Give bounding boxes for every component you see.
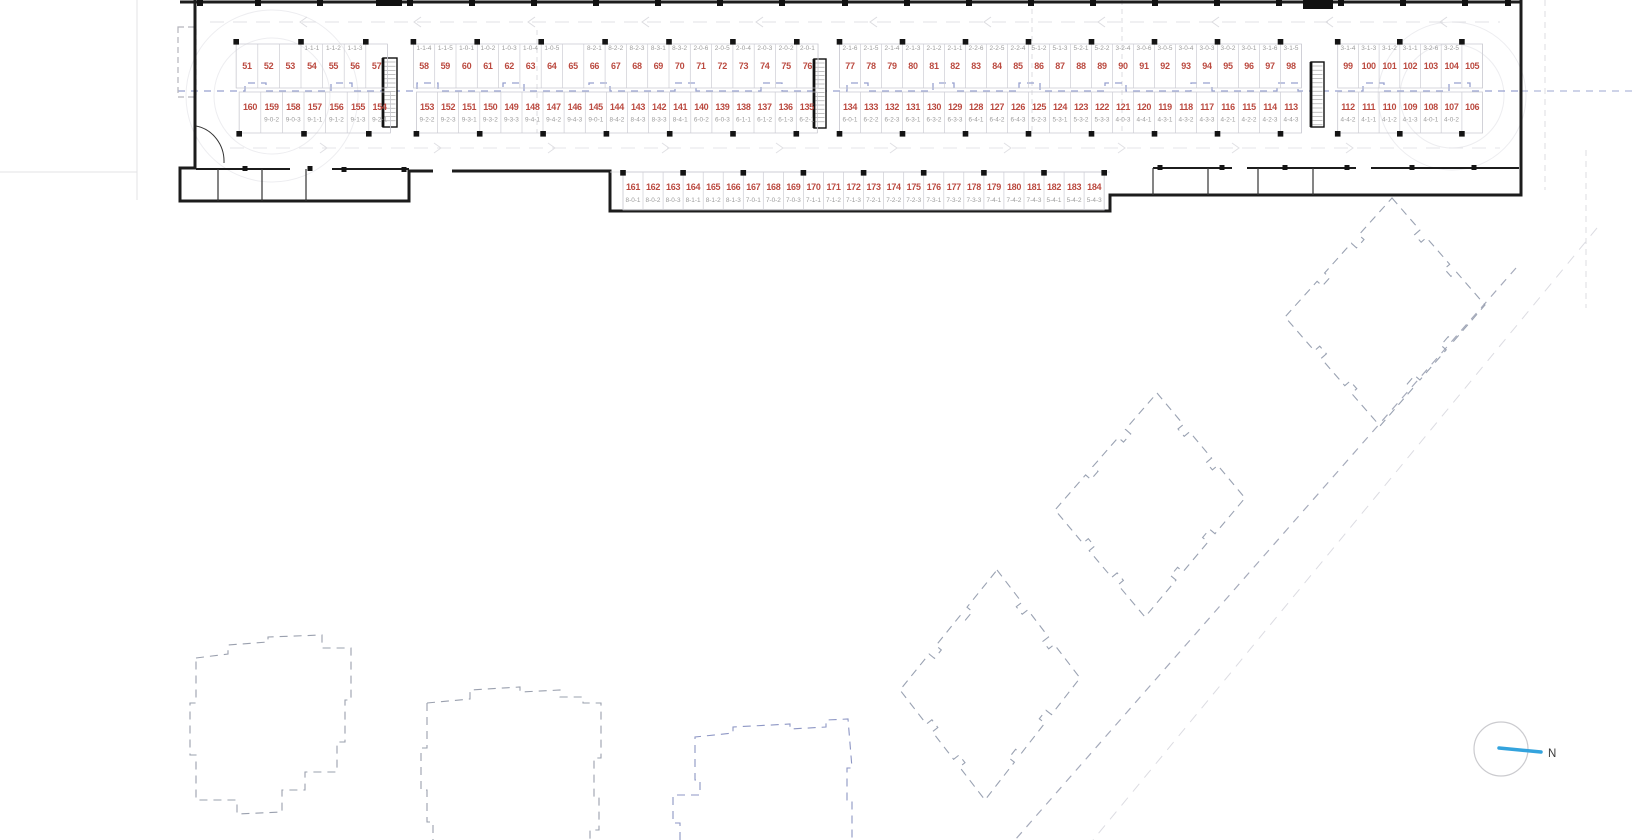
unit-code: 5-1-3 — [1053, 45, 1068, 52]
unit-code: 4-4-1 — [1137, 117, 1152, 124]
stall-number: 164 — [686, 182, 700, 192]
unit-code: 8-3-3 — [652, 117, 667, 124]
unit-code: 4-3-2 — [1179, 117, 1194, 124]
stall-number: 163 — [666, 182, 680, 192]
unit-code: 2-0-6 — [693, 45, 708, 52]
stall-number: 81 — [929, 61, 939, 71]
structural-column — [1220, 165, 1225, 170]
stall-number: 58 — [419, 61, 429, 71]
unit-code: 7-4-3 — [1027, 197, 1042, 204]
stall-number: 63 — [526, 61, 536, 71]
stall-number: 151 — [462, 102, 476, 112]
storage-partitions-right — [1153, 168, 1313, 195]
stall-number: 180 — [1007, 182, 1021, 192]
structural-column — [1090, 0, 1096, 6]
unit-code: 2-1-4 — [885, 45, 900, 52]
stall-number: 98 — [1286, 61, 1296, 71]
unit-code: 8-0-1 — [626, 197, 641, 204]
parking-group: 1618-0-11628-0-21638-0-31648-1-11658-1-2… — [620, 170, 1107, 210]
stall-number: 115 — [1242, 102, 1256, 112]
structural-column — [414, 131, 420, 137]
structural-column — [837, 39, 843, 45]
structural-column — [837, 131, 843, 137]
structural-column — [1472, 165, 1477, 170]
stall-number: 134 — [843, 102, 857, 112]
structural-column — [298, 39, 304, 45]
unit-code: 1-0-5 — [544, 45, 559, 52]
north-label: N — [1548, 748, 1556, 760]
structural-column — [342, 167, 347, 172]
stall-number: 159 — [265, 102, 279, 112]
unit-code: 9-3-3 — [504, 117, 519, 124]
structural-column — [1345, 165, 1350, 170]
stall-number: 153 — [420, 102, 434, 112]
unit-code: 9-4-1 — [525, 117, 540, 124]
structural-column — [667, 131, 673, 137]
building-outline-southwest-2 — [421, 687, 601, 840]
unit-code: 8-4-2 — [609, 117, 624, 124]
structural-column — [1152, 131, 1158, 137]
unit-code: 2-0-4 — [736, 45, 751, 52]
unit-code: 7-4-2 — [1007, 197, 1022, 204]
stall-number: 158 — [286, 102, 300, 112]
structural-column — [963, 39, 969, 45]
building-outline-tower-3 — [900, 570, 1080, 800]
structural-column — [842, 0, 848, 6]
unit-code: 3-1-3 — [1361, 45, 1376, 52]
structural-column — [1215, 39, 1221, 45]
stall-number: 64 — [547, 61, 557, 71]
stall-number: 152 — [441, 102, 455, 112]
stall-number: 176 — [927, 182, 941, 192]
unit-code: 9-1-2 — [329, 117, 344, 124]
unit-code: 1-0-3 — [502, 45, 517, 52]
stall-number: 51 — [242, 61, 252, 71]
unit-code: 9-0-1 — [588, 117, 603, 124]
floor-plan-canvas: 515253541-1-1551-1-2561-1-357 581-1-4591… — [0, 0, 1638, 840]
parking-group: 993-1-41003-1-31013-1-21023-1-11033-2-61… — [1335, 39, 1483, 88]
unit-code: 8-4-3 — [631, 117, 646, 124]
stall-number: 174 — [887, 182, 901, 192]
ramp-arc — [214, 38, 330, 154]
structural-column — [1276, 0, 1282, 6]
unit-code: 9-0-2 — [264, 117, 279, 124]
lane-arrow-left — [984, 17, 991, 27]
unit-code: 2-0-1 — [800, 45, 815, 52]
stall-number: 114 — [1263, 102, 1277, 112]
stall-number: 157 — [308, 102, 322, 112]
unit-code: 5-3-3 — [1095, 117, 1110, 124]
building-outline-tower-2 — [1055, 393, 1245, 617]
parking-group: 1124-4-21114-1-11104-1-21094-1-31084-0-1… — [1335, 92, 1483, 137]
structural-column — [1338, 0, 1344, 6]
stall-number: 53 — [285, 61, 295, 71]
stall-number: 147 — [547, 102, 561, 112]
unit-code: 1-1-1 — [304, 45, 319, 52]
stall-number: 120 — [1137, 102, 1151, 112]
structural-column — [1278, 39, 1284, 45]
stall-number: 83 — [971, 61, 981, 71]
stall-number: 73 — [739, 61, 749, 71]
lane-arrow-right — [1232, 143, 1239, 153]
lane-direction-arrows — [300, 17, 1447, 153]
structural-column — [477, 131, 483, 137]
structural-column — [602, 39, 608, 45]
core-block — [376, 0, 402, 6]
structural-column — [730, 131, 736, 137]
stall-number: 167 — [746, 182, 760, 192]
structural-column — [1505, 0, 1511, 6]
stall-number: 54 — [307, 61, 317, 71]
structural-column — [963, 131, 969, 137]
structural-column — [604, 131, 610, 137]
unit-code: 1-1-4 — [417, 45, 432, 52]
unit-code: 7-0-3 — [786, 197, 801, 204]
unit-code: 8-0-3 — [666, 197, 681, 204]
stall-number: 165 — [706, 182, 720, 192]
stall-number: 66 — [590, 61, 600, 71]
stall-number: 97 — [1265, 61, 1275, 71]
structural-column — [1400, 0, 1406, 6]
unit-code: 4-0-2 — [1444, 117, 1459, 124]
unit-code: 8-3-2 — [672, 45, 687, 52]
unit-code: 8-2-1 — [587, 45, 602, 52]
structural-column — [741, 170, 747, 176]
ramp-arc — [186, 10, 358, 182]
stall-number: 170 — [806, 182, 820, 192]
unit-code: 7-0-1 — [746, 197, 761, 204]
unit-code: 7-2-1 — [866, 197, 881, 204]
structural-column — [1462, 0, 1468, 6]
stall-number: 87 — [1055, 61, 1065, 71]
unit-code: 3-0-3 — [1200, 45, 1215, 52]
stall-number: 154 — [373, 102, 387, 112]
unit-code: 5-2-2 — [1095, 45, 1110, 52]
parking-group: 515253541-1-1551-1-2561-1-357 — [233, 39, 387, 88]
stall-number: 70 — [675, 61, 685, 71]
unit-code: 3-1-5 — [1284, 45, 1299, 52]
structural-column — [1335, 131, 1341, 137]
stall-number: 141 — [673, 102, 687, 112]
unit-code: 4-0-1 — [1423, 117, 1438, 124]
stall-number: 61 — [483, 61, 493, 71]
stall-number: 148 — [525, 102, 539, 112]
unit-code: 9-2-1 — [372, 117, 387, 124]
parking-group: 1346-0-11336-2-21326-2-31316-3-11306-3-2… — [837, 92, 1302, 137]
storage-partitions-left — [218, 169, 306, 201]
stall-number: 60 — [462, 61, 472, 71]
stall-number: 160 — [243, 102, 257, 112]
structural-column — [717, 0, 723, 6]
stall-number: 59 — [441, 61, 451, 71]
stall-number: 65 — [568, 61, 578, 71]
north-compass: N — [1474, 722, 1556, 776]
structural-column — [921, 170, 927, 176]
unit-code: 1-1-3 — [348, 45, 363, 52]
stall-number: 69 — [654, 61, 664, 71]
structural-column — [680, 170, 686, 176]
stall-number: 111 — [1362, 102, 1375, 112]
structural-column — [1215, 131, 1221, 137]
unit-code: 5-4-1 — [1047, 197, 1062, 204]
structural-column — [411, 39, 417, 45]
unit-code: 2-1-1 — [948, 45, 963, 52]
structural-column — [255, 0, 261, 6]
lane-arrow-left — [1212, 17, 1219, 27]
unit-code: 6-3-1 — [906, 117, 921, 124]
structural-column — [1459, 39, 1465, 45]
stall-number: 175 — [907, 182, 921, 192]
stair-core — [1311, 62, 1324, 127]
structural-column — [666, 39, 672, 45]
unit-code: 3-2-4 — [1116, 45, 1131, 52]
ramp-arc — [1400, 44, 1504, 148]
stall-number: 169 — [786, 182, 800, 192]
structural-column — [1041, 170, 1047, 176]
stall-number: 56 — [350, 61, 360, 71]
stall-number: 62 — [504, 61, 514, 71]
stall-number: 67 — [611, 61, 621, 71]
stall-number: 117 — [1200, 102, 1214, 112]
structural-column — [1410, 165, 1415, 170]
stall-number: 131 — [906, 102, 920, 112]
parking-group: 1539-2-21529-2-31519-3-11509-3-21499-3-3… — [414, 92, 818, 137]
stall-number: 75 — [781, 61, 791, 71]
stall-number: 124 — [1053, 102, 1067, 112]
structural-column — [794, 131, 800, 137]
structural-column — [1152, 0, 1158, 6]
stall-number: 91 — [1139, 61, 1149, 71]
structural-column — [1278, 131, 1284, 137]
unit-code: 9-3-2 — [483, 117, 498, 124]
stall-number: 72 — [717, 61, 727, 71]
unit-code: 7-1-1 — [806, 197, 821, 204]
structural-column — [593, 0, 599, 6]
stall-number: 86 — [1034, 61, 1044, 71]
unit-code: 5-1-2 — [1032, 45, 1047, 52]
parking-bay-outline — [416, 92, 817, 133]
unit-code: 2-1-3 — [906, 45, 921, 52]
unit-code: 6-2-3 — [885, 117, 900, 124]
stall-number: 71 — [696, 61, 706, 71]
stall-number: 95 — [1223, 61, 1233, 71]
unit-code: 3-2-6 — [1423, 45, 1438, 52]
unit-code: 3-0-2 — [1221, 45, 1236, 52]
unit-code: 7-3-3 — [966, 197, 981, 204]
stall-number: 139 — [715, 102, 729, 112]
stall-number: 79 — [887, 61, 897, 71]
structural-column — [363, 39, 369, 45]
structural-column — [1158, 165, 1163, 170]
structural-column — [233, 39, 239, 45]
stall-number: 149 — [504, 102, 518, 112]
unit-code: 6-4-3 — [1011, 117, 1026, 124]
structural-column — [1028, 0, 1034, 6]
unit-code: 3-0-6 — [1137, 45, 1152, 52]
unit-code: 6-3-3 — [948, 117, 963, 124]
lane-arrow-left — [1098, 17, 1105, 27]
parking-bay-outline — [239, 92, 390, 133]
lane-arrow-right — [776, 143, 783, 153]
door-swing-arc — [196, 126, 224, 163]
stall-number: 126 — [1011, 102, 1025, 112]
stall-number: 132 — [885, 102, 899, 112]
unit-code: 7-2-3 — [906, 197, 921, 204]
unit-code: 4-2-1 — [1221, 117, 1236, 124]
stall-number: 68 — [632, 61, 642, 71]
stall-number: 84 — [992, 61, 1002, 71]
stall-number: 182 — [1047, 182, 1061, 192]
unit-code: 2-0-5 — [715, 45, 730, 52]
unit-code: 2-0-2 — [779, 45, 794, 52]
unit-code: 2-1-2 — [927, 45, 942, 52]
unit-code: 5-2-1 — [1074, 45, 1089, 52]
stall-number: 118 — [1179, 102, 1193, 112]
unit-code: 2-2-5 — [990, 45, 1005, 52]
unit-code: 3-0-5 — [1158, 45, 1173, 52]
unit-code: 4-1-3 — [1403, 117, 1418, 124]
unit-code: 8-4-1 — [673, 117, 688, 124]
stall-number: 179 — [987, 182, 1001, 192]
unit-code: 8-1-1 — [686, 197, 701, 204]
stall-number: 119 — [1158, 102, 1172, 112]
parking-group: 772-1-6782-1-5792-1-4802-1-3812-1-2822-1… — [837, 39, 1302, 88]
unit-code: 2-2-6 — [969, 45, 984, 52]
stall-number: 105 — [1465, 61, 1479, 71]
unit-code: 1-0-2 — [480, 45, 495, 52]
stall-number: 88 — [1076, 61, 1086, 71]
unit-code: 8-3-1 — [651, 45, 666, 52]
stall-number: 173 — [867, 182, 881, 192]
stall-number: 122 — [1095, 102, 1109, 112]
stall-number: 184 — [1087, 182, 1101, 192]
stall-number: 144 — [610, 102, 624, 112]
unit-code: 3-1-4 — [1341, 45, 1356, 52]
unit-code: 3-2-5 — [1444, 45, 1459, 52]
unit-code: 9-1-1 — [307, 117, 322, 124]
stall-number: 96 — [1244, 61, 1254, 71]
stall-number: 145 — [589, 102, 603, 112]
unit-code: 7-4-1 — [986, 197, 1001, 204]
unit-code: 3-1-6 — [1263, 45, 1278, 52]
stall-number: 104 — [1444, 61, 1458, 71]
unit-code: 4-4-3 — [1284, 117, 1299, 124]
unit-code: 8-0-2 — [646, 197, 661, 204]
structural-column — [1397, 39, 1403, 45]
unit-code: 7-2-2 — [886, 197, 901, 204]
stall-number: 178 — [967, 182, 981, 192]
unit-code: 6-0-2 — [694, 117, 709, 124]
unit-code: 1-1-2 — [326, 45, 341, 52]
stall-number: 162 — [646, 182, 660, 192]
stall-number: 161 — [626, 182, 640, 192]
structural-column — [1152, 39, 1158, 45]
unit-code: 8-1-2 — [706, 197, 721, 204]
unit-code: 1-0-4 — [523, 45, 538, 52]
unit-code: 3-0-4 — [1179, 45, 1194, 52]
stall-number: 77 — [845, 61, 855, 71]
unit-code: 1-0-1 — [459, 45, 474, 52]
structural-column — [474, 39, 480, 45]
unit-code: 2-1-6 — [843, 45, 858, 52]
building-outline-tower-1 — [1285, 198, 1485, 426]
structural-column — [794, 39, 800, 45]
structural-column — [1101, 170, 1107, 176]
stall-number: 57 — [372, 61, 382, 71]
building-outline-southwest-3 — [673, 719, 852, 840]
structural-column — [366, 131, 372, 137]
stall-number: 90 — [1118, 61, 1128, 71]
structural-column — [1089, 131, 1095, 137]
lane-arrow-right — [1004, 143, 1011, 153]
stall-number: 116 — [1221, 102, 1235, 112]
structural-column — [540, 131, 546, 137]
core-block — [1303, 0, 1333, 9]
stall-number: 93 — [1181, 61, 1191, 71]
stall-number: 137 — [758, 102, 772, 112]
north-arrow-icon — [1499, 748, 1541, 752]
parking-stalls-layer: 515253541-1-1551-1-2561-1-357 581-1-4591… — [233, 39, 1482, 210]
structural-column — [779, 0, 785, 6]
unit-code: 3-0-1 — [1242, 45, 1257, 52]
unit-code: 2-0-3 — [757, 45, 772, 52]
unit-code: 9-3-1 — [462, 117, 477, 124]
stall-number: 109 — [1403, 102, 1417, 112]
stall-number: 183 — [1067, 182, 1081, 192]
unit-code: 8-2-3 — [630, 45, 645, 52]
stall-number: 146 — [568, 102, 582, 112]
structural-column — [966, 0, 972, 6]
lane-arrow-right — [1118, 143, 1125, 153]
stall-number: 100 — [1362, 61, 1376, 71]
parking-group: 1601599-0-21589-0-31579-1-11569-1-21559-… — [236, 92, 390, 137]
stall-number: 150 — [483, 102, 497, 112]
unit-code: 6-4-1 — [969, 117, 984, 124]
structural-column — [1026, 131, 1032, 137]
lane-arrow-left — [870, 17, 877, 27]
unit-code: 6-0-1 — [843, 117, 858, 124]
unit-code: 6-0-3 — [715, 117, 730, 124]
stall-number: 103 — [1424, 61, 1438, 71]
stall-number: 140 — [694, 102, 708, 112]
unit-code: 6-1-1 — [736, 117, 751, 124]
unit-code: 7-0-2 — [766, 197, 781, 204]
stall-number: 101 — [1382, 61, 1396, 71]
unit-code: 9-2-3 — [441, 117, 456, 124]
site-boundary-diagonal — [1015, 268, 1516, 840]
structural-column — [900, 131, 906, 137]
structural-column — [900, 39, 906, 45]
unit-code: 6-2-1 — [799, 117, 814, 124]
stall-number: 136 — [779, 102, 793, 112]
unit-code: 9-4-3 — [567, 117, 582, 124]
stall-number: 52 — [264, 61, 274, 71]
stall-number: 128 — [969, 102, 983, 112]
unit-code: 4-2-2 — [1242, 117, 1257, 124]
stall-number: 129 — [948, 102, 962, 112]
unit-code: 4-4-2 — [1341, 117, 1356, 124]
stall-number: 76 — [803, 61, 813, 71]
structural-column — [1089, 39, 1095, 45]
structural-column — [197, 0, 203, 6]
unit-code: 9-2-2 — [420, 117, 435, 124]
stall-number: 155 — [351, 102, 365, 112]
unit-code: 5-4-2 — [1067, 197, 1082, 204]
stall-number: 142 — [652, 102, 666, 112]
unit-code: 4-3-3 — [1200, 117, 1215, 124]
stall-number: 107 — [1444, 102, 1458, 112]
unit-code: 5-3-1 — [1053, 117, 1068, 124]
